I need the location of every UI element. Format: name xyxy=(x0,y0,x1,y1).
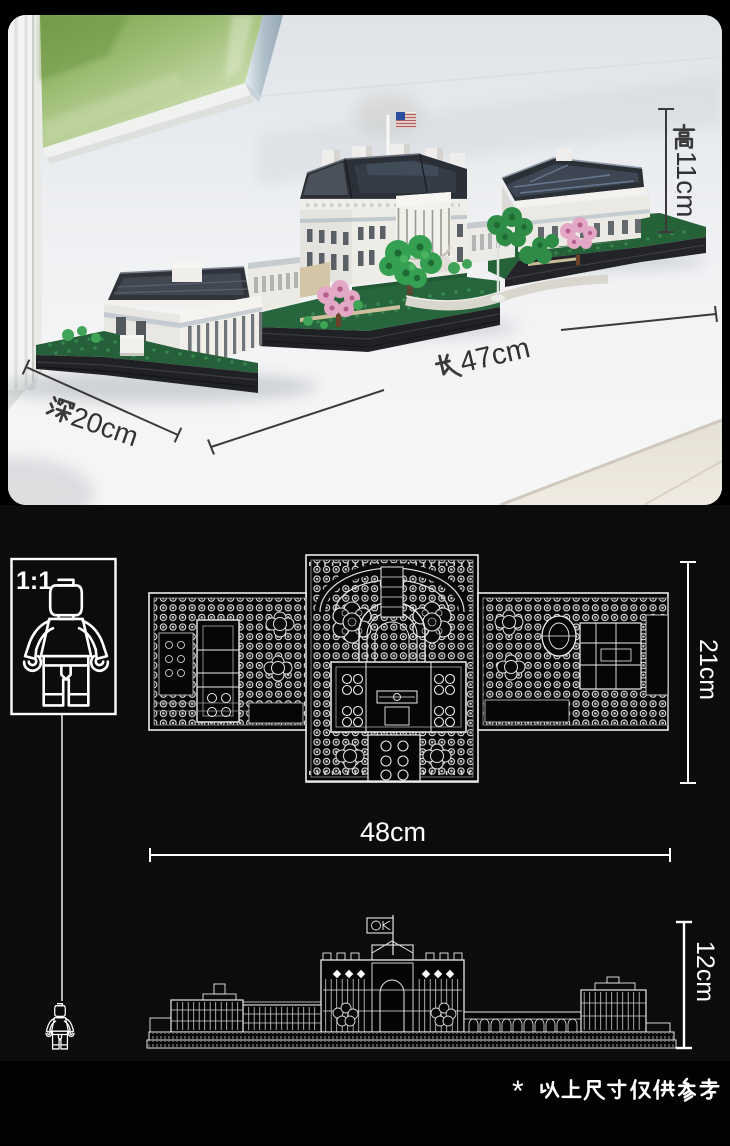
svg-text:12cm: 12cm xyxy=(691,941,719,1002)
svg-text:11cm: 11cm xyxy=(671,151,702,217)
svg-text:*: * xyxy=(512,1075,524,1108)
svg-text:48cm: 48cm xyxy=(360,817,426,847)
svg-text:21cm: 21cm xyxy=(694,639,722,700)
svg-text:1:1: 1:1 xyxy=(16,567,52,595)
